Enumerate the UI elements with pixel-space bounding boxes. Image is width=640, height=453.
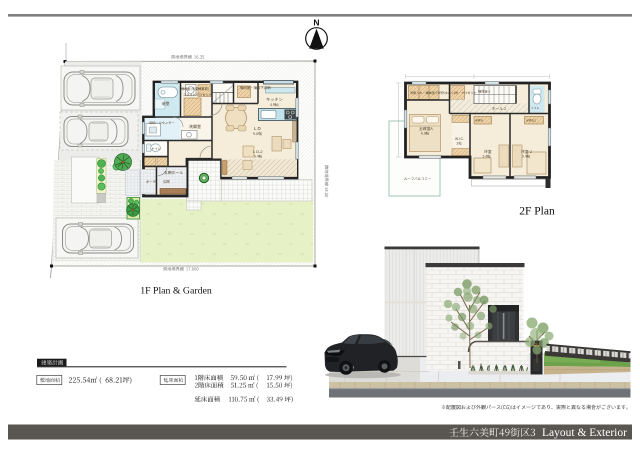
svg-text:Layout & Exterior: Layout & Exterior	[542, 427, 627, 439]
svg-text:N: N	[313, 18, 319, 28]
svg-text:1F Plan & Garden: 1F Plan & Garden	[140, 286, 212, 297]
svg-text:L D: L D	[254, 126, 261, 131]
svg-text:W.I.C.: W.I.C.	[455, 137, 464, 141]
svg-text:2F Plan: 2F Plan	[519, 206, 555, 218]
svg-text:L D-2: L D-2	[253, 149, 263, 154]
